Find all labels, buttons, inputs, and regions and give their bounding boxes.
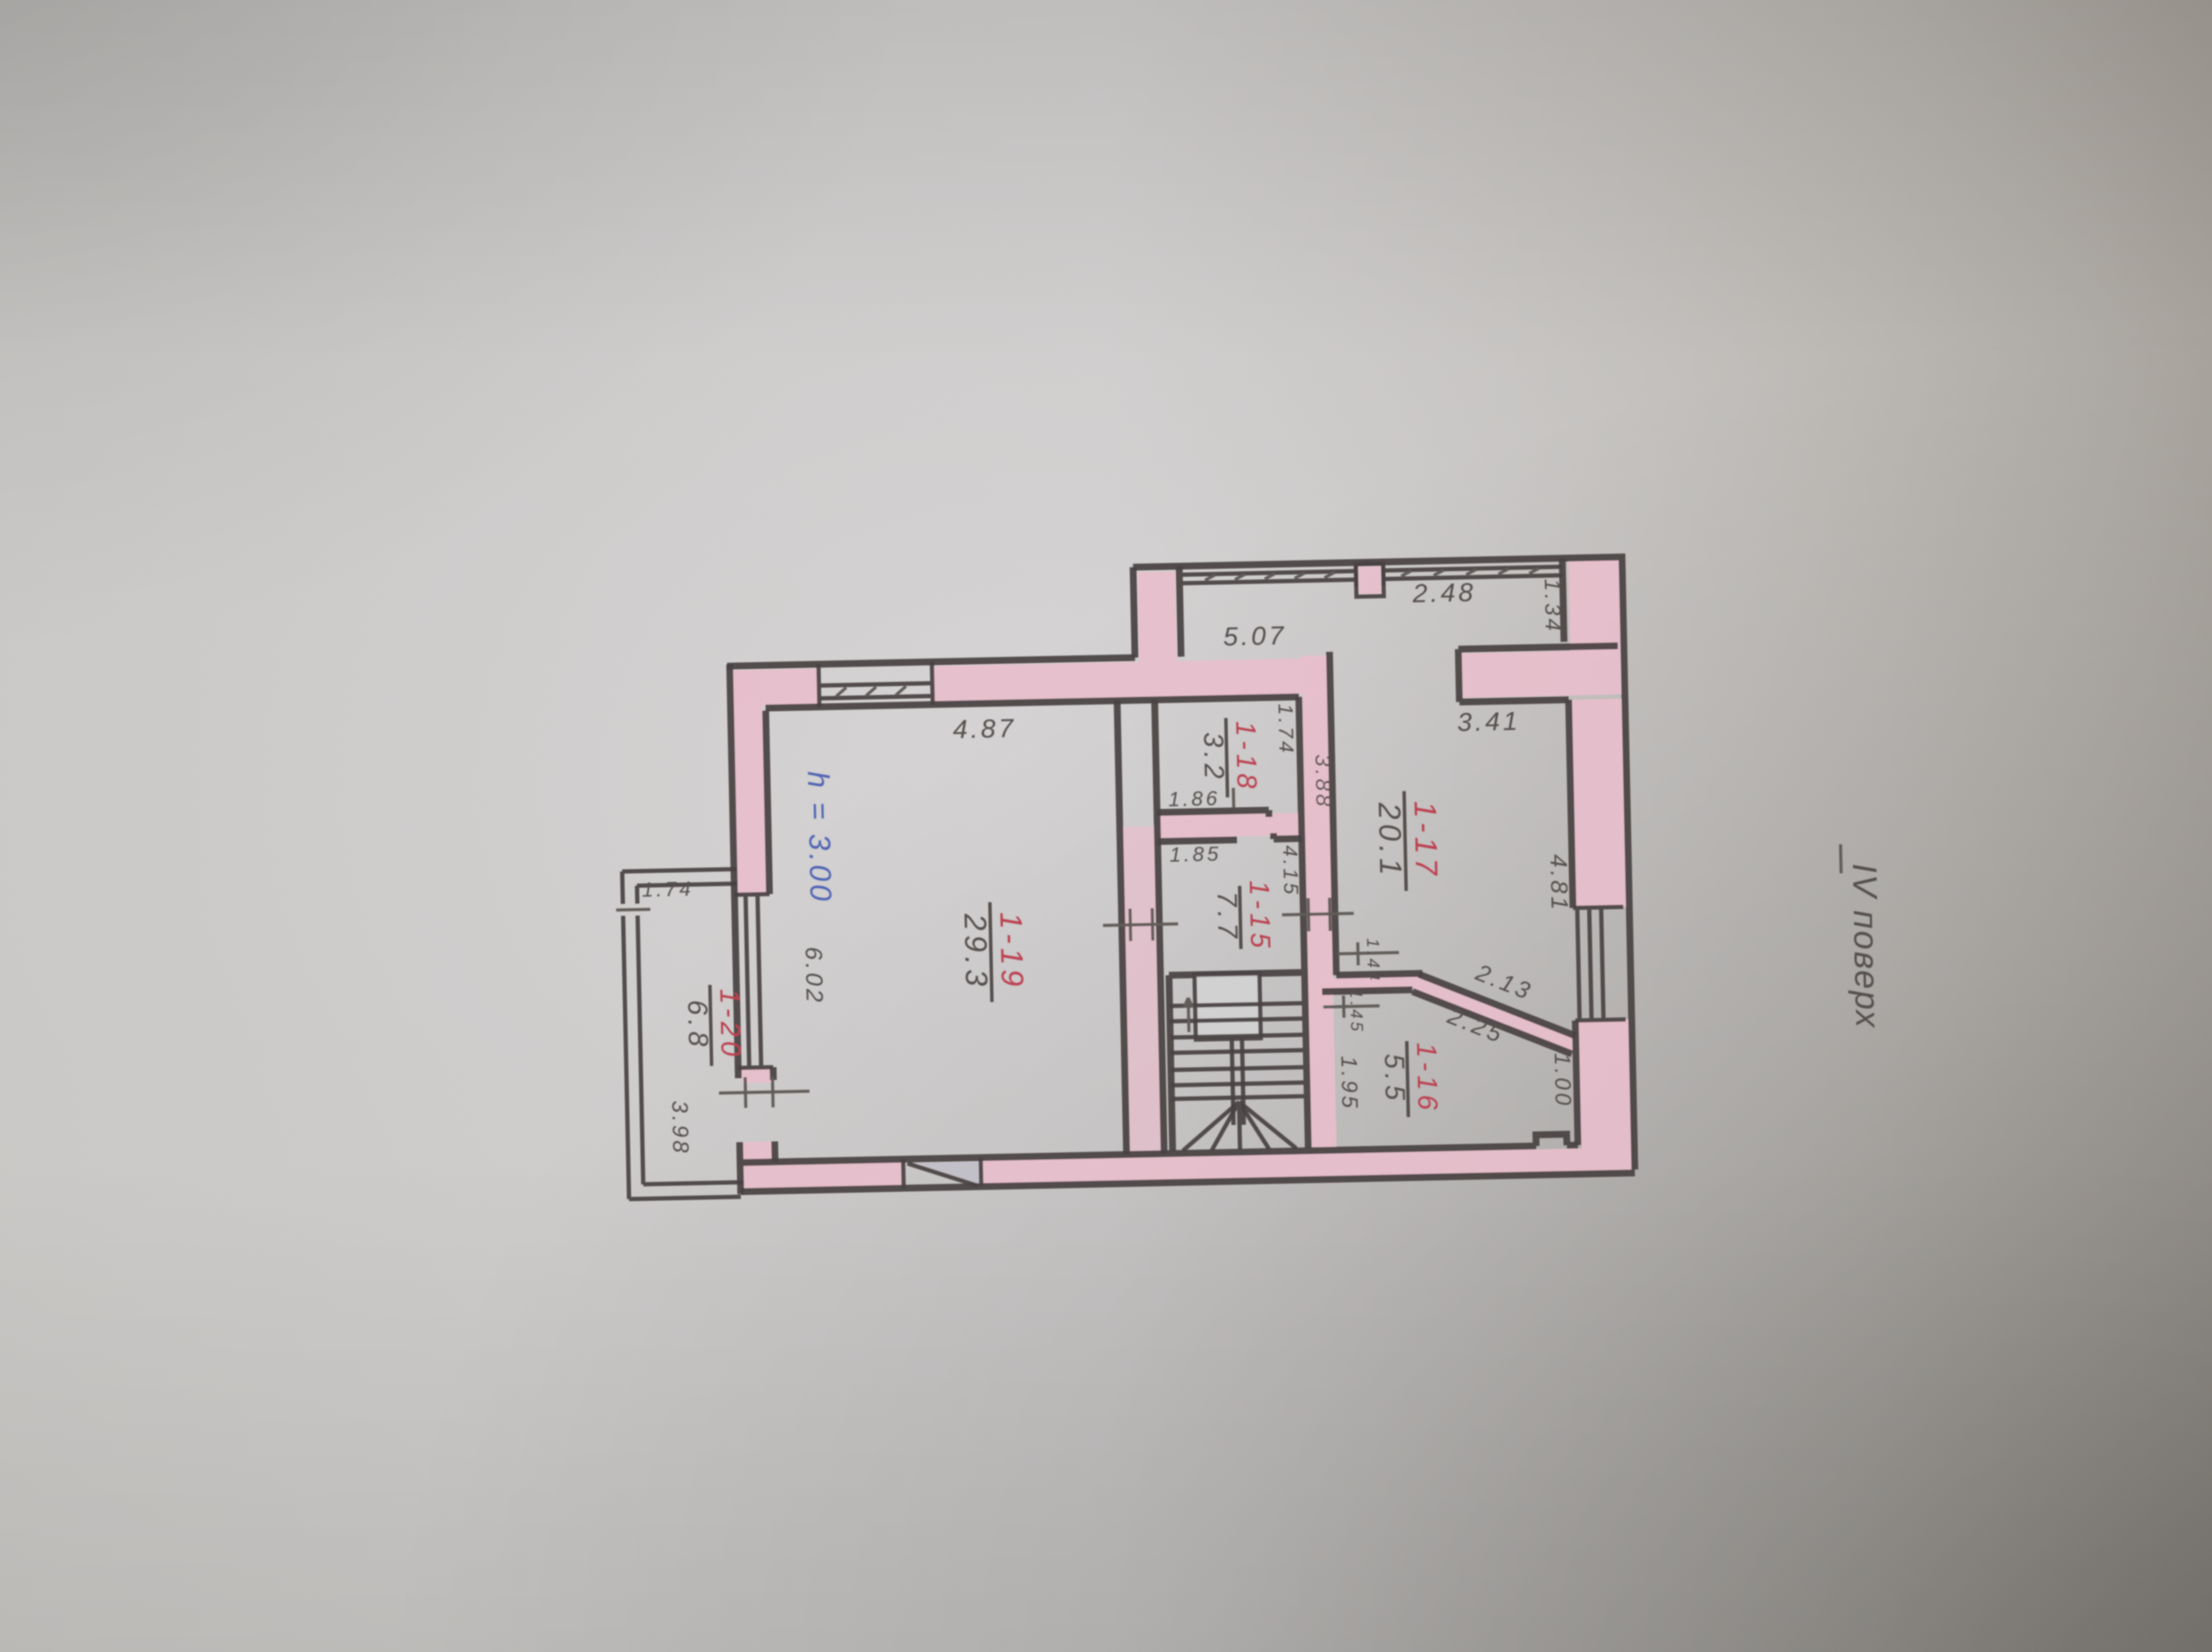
svg-text:1-19: 1-19 [993, 911, 1030, 991]
svg-text:IV поверх: IV поверх [1845, 863, 1886, 1029]
svg-text:3.2: 3.2 [1198, 732, 1230, 783]
svg-text:1.74: 1.74 [642, 878, 694, 902]
svg-text:5.5: 5.5 [1379, 1053, 1411, 1104]
svg-text:1-20: 1-20 [714, 988, 747, 1061]
svg-text:1.44: 1.44 [1363, 938, 1382, 983]
svg-text:1.74: 1.74 [1273, 703, 1297, 755]
svg-text:1-16: 1-16 [1411, 1042, 1443, 1114]
svg-text:3.88: 3.88 [1310, 753, 1336, 809]
svg-text:1.95: 1.95 [1336, 1056, 1363, 1111]
svg-text:1.86: 1.86 [1168, 788, 1220, 811]
svg-text:6.8: 6.8 [682, 999, 713, 1050]
svg-text:4.87: 4.87 [952, 713, 1016, 745]
svg-text:3.41: 3.41 [1457, 706, 1521, 737]
svg-text:5.07: 5.07 [1223, 620, 1287, 652]
svg-text:1-17: 1-17 [1408, 800, 1445, 880]
svg-text:1.85: 1.85 [1169, 843, 1221, 867]
svg-text:1-18: 1-18 [1231, 721, 1263, 794]
svg-text:1.00: 1.00 [1550, 1053, 1576, 1108]
svg-text:1.45: 1.45 [1346, 989, 1365, 1034]
svg-text:2.48: 2.48 [1412, 577, 1476, 608]
svg-text:h = 3.00: h = 3.00 [801, 771, 837, 904]
svg-text:1.34: 1.34 [1540, 579, 1566, 634]
svg-text:3.98: 3.98 [667, 1100, 694, 1155]
svg-text:4.81: 4.81 [1545, 854, 1573, 913]
svg-text:1-15: 1-15 [1243, 880, 1276, 952]
svg-text:29.3: 29.3 [958, 912, 994, 991]
svg-text:7.7: 7.7 [1212, 891, 1243, 942]
svg-text:4.15: 4.15 [1278, 845, 1302, 897]
svg-text:20.1: 20.1 [1372, 801, 1409, 880]
svg-text:6.02: 6.02 [800, 946, 828, 1005]
